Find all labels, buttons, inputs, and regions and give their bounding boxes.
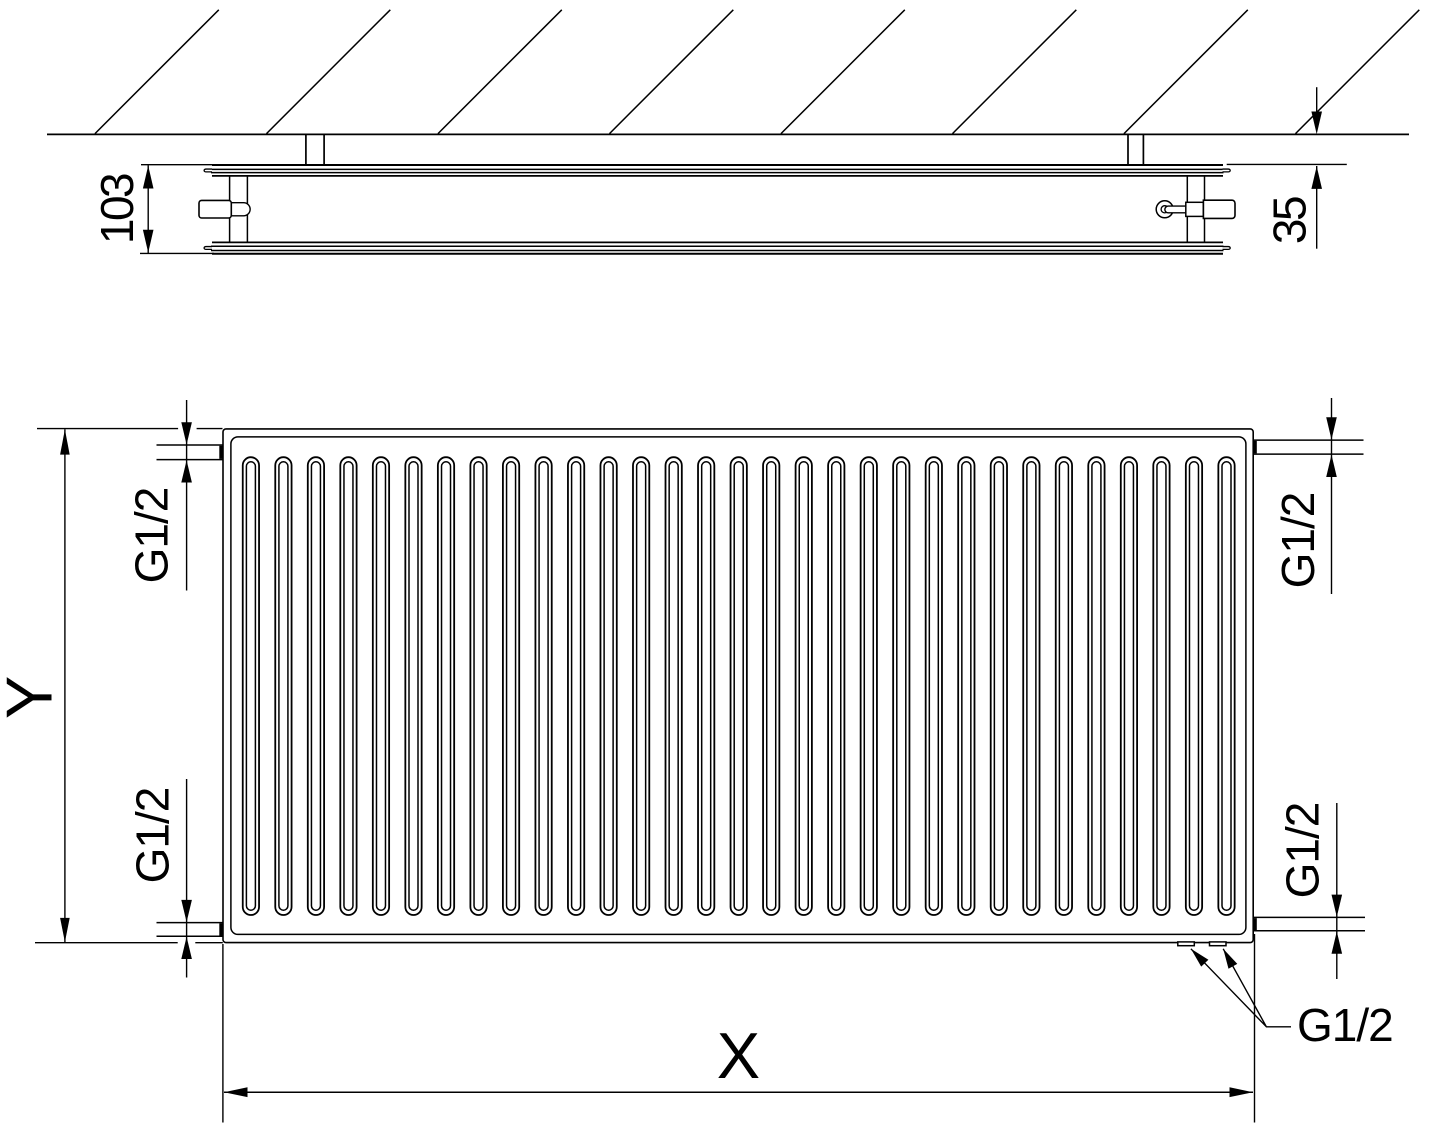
svg-text:G1/2: G1/2 (1272, 493, 1324, 589)
svg-text:G1/2: G1/2 (1297, 999, 1393, 1051)
svg-text:X: X (717, 1019, 760, 1092)
svg-text:G1/2: G1/2 (127, 788, 179, 884)
svg-text:103: 103 (91, 174, 143, 244)
svg-text:Y: Y (0, 676, 66, 719)
svg-text:35: 35 (1264, 197, 1316, 244)
svg-text:G1/2: G1/2 (1277, 803, 1329, 899)
svg-text:G1/2: G1/2 (126, 488, 178, 584)
